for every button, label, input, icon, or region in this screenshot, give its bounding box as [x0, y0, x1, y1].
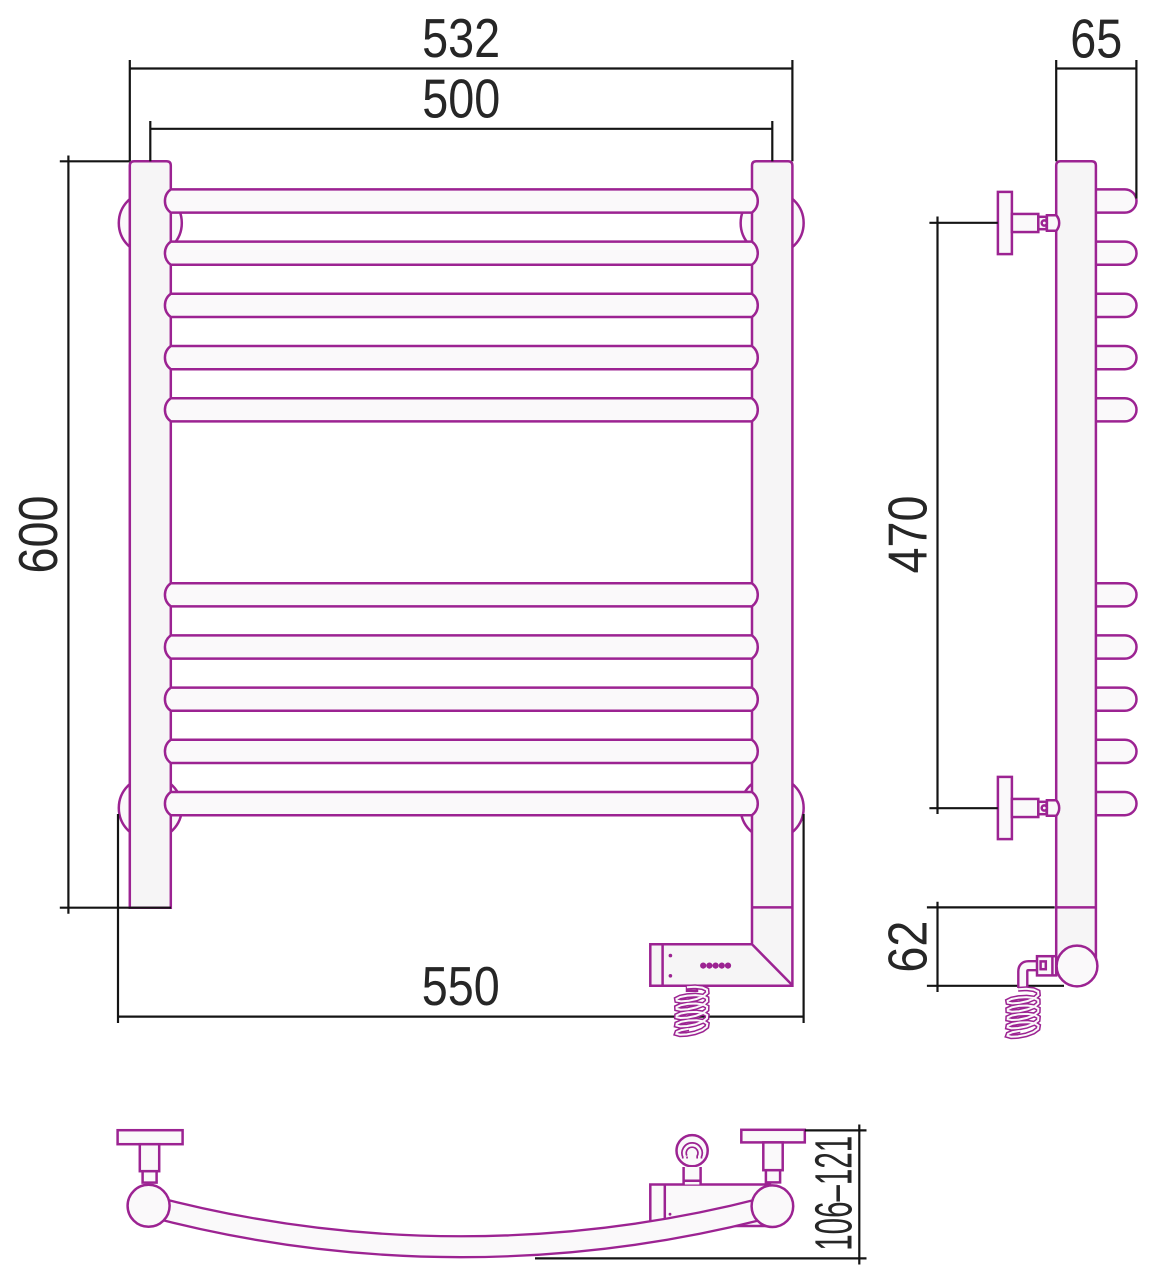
- svg-text:62: 62: [876, 921, 938, 973]
- svg-text:532: 532: [422, 7, 500, 69]
- svg-text:106–121: 106–121: [805, 1136, 864, 1251]
- svg-text:470: 470: [876, 495, 938, 573]
- svg-text:65: 65: [1070, 8, 1122, 70]
- svg-text:500: 500: [422, 68, 500, 130]
- svg-text:600: 600: [7, 495, 69, 573]
- svg-text:550: 550: [422, 955, 500, 1017]
